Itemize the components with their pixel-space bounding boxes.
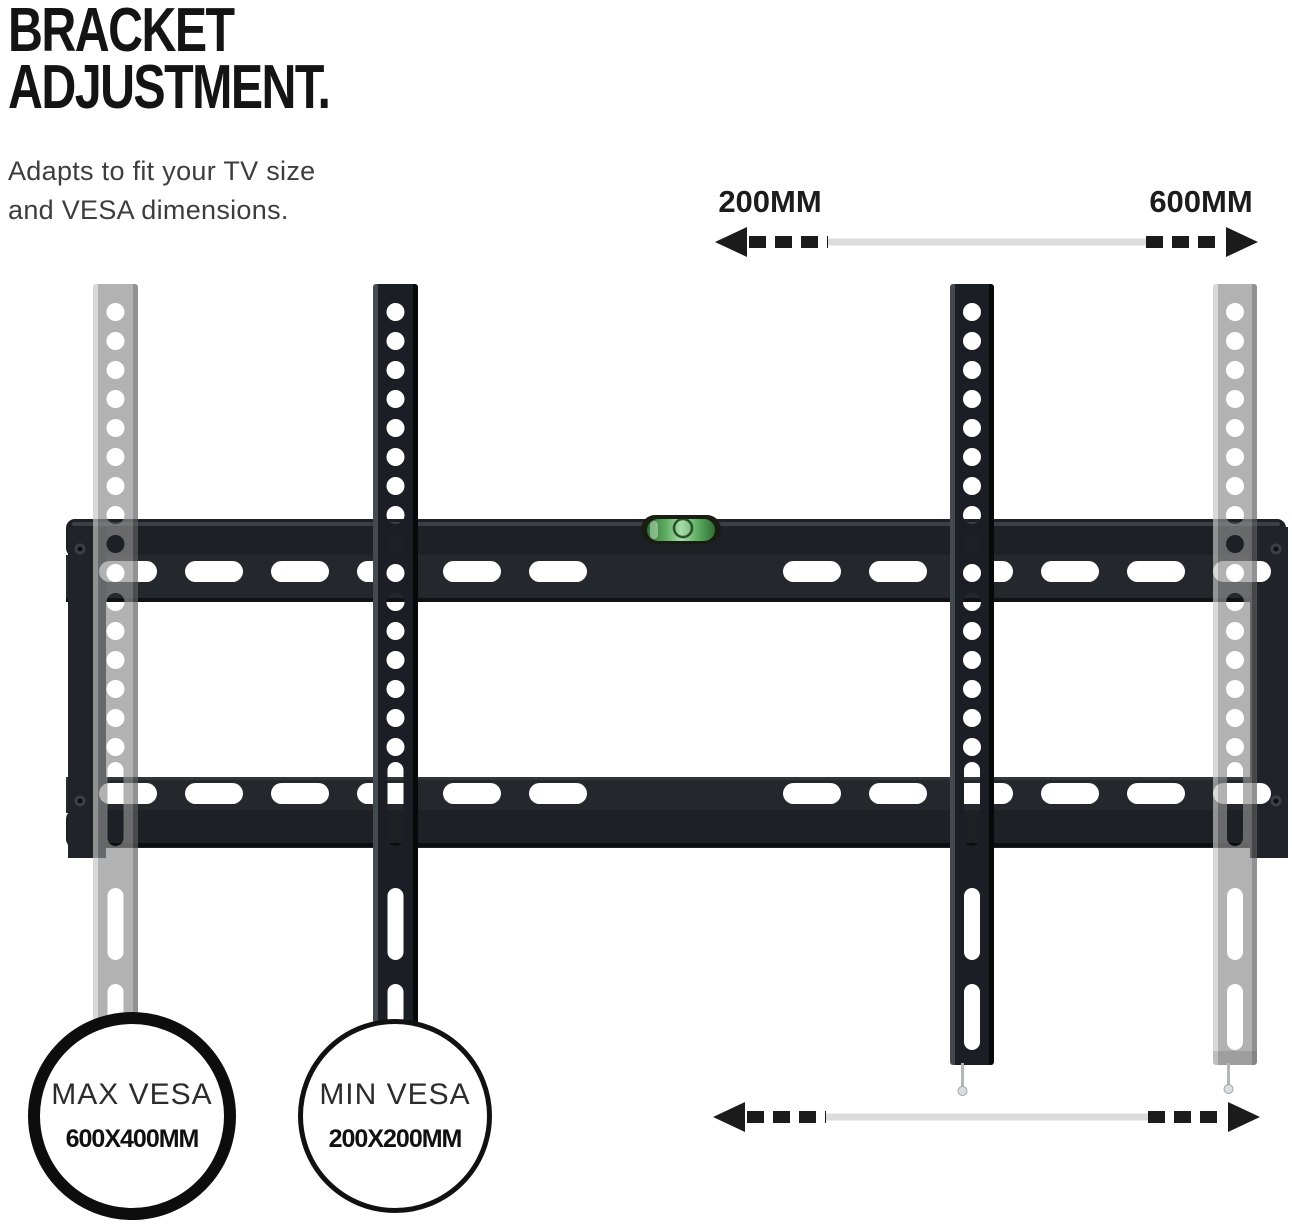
bracket-adjustment-infographic: BRACKET ADJUSTMENT. Adapts to fit your T… xyxy=(0,0,1292,1227)
black-arm-left xyxy=(373,284,418,1065)
locking-pin-black-arm xyxy=(958,1063,967,1096)
min-vesa-badge: MIN VESA 200X200MM xyxy=(298,1019,492,1213)
max-vesa-value: 600X400MM xyxy=(66,1125,199,1154)
min-vesa-value: 200X200MM xyxy=(329,1125,462,1154)
black-arm-right xyxy=(950,284,994,1065)
dimension-label-min: 200MM xyxy=(670,184,870,220)
wall-plate xyxy=(66,519,1288,858)
dimension-label-max: 600MM xyxy=(1101,184,1292,220)
title-line-1: BRACKET xyxy=(8,2,329,59)
ghost-arm-right xyxy=(1213,284,1257,1065)
max-vesa-badge: MAX VESA 600X400MM xyxy=(28,1012,236,1220)
subtitle-line-1: Adapts to fit your TV size xyxy=(8,152,315,191)
page-subtitle: Adapts to fit your TV size and VESA dime… xyxy=(8,152,315,230)
spirit-level-icon xyxy=(641,515,721,544)
top-dimension-arrow-icon xyxy=(715,227,1258,257)
subtitle-line-2: and VESA dimensions. xyxy=(8,191,315,230)
ghost-arm-left xyxy=(93,284,138,1065)
locking-pin-ghost-arm xyxy=(1224,1063,1233,1094)
page-title: BRACKET ADJUSTMENT. xyxy=(8,2,420,116)
bottom-dimension-arrow-icon xyxy=(713,1102,1260,1132)
max-vesa-title: MAX VESA xyxy=(51,1078,212,1112)
title-line-2: ADJUSTMENT. xyxy=(8,59,329,116)
min-vesa-title: MIN VESA xyxy=(319,1078,470,1112)
